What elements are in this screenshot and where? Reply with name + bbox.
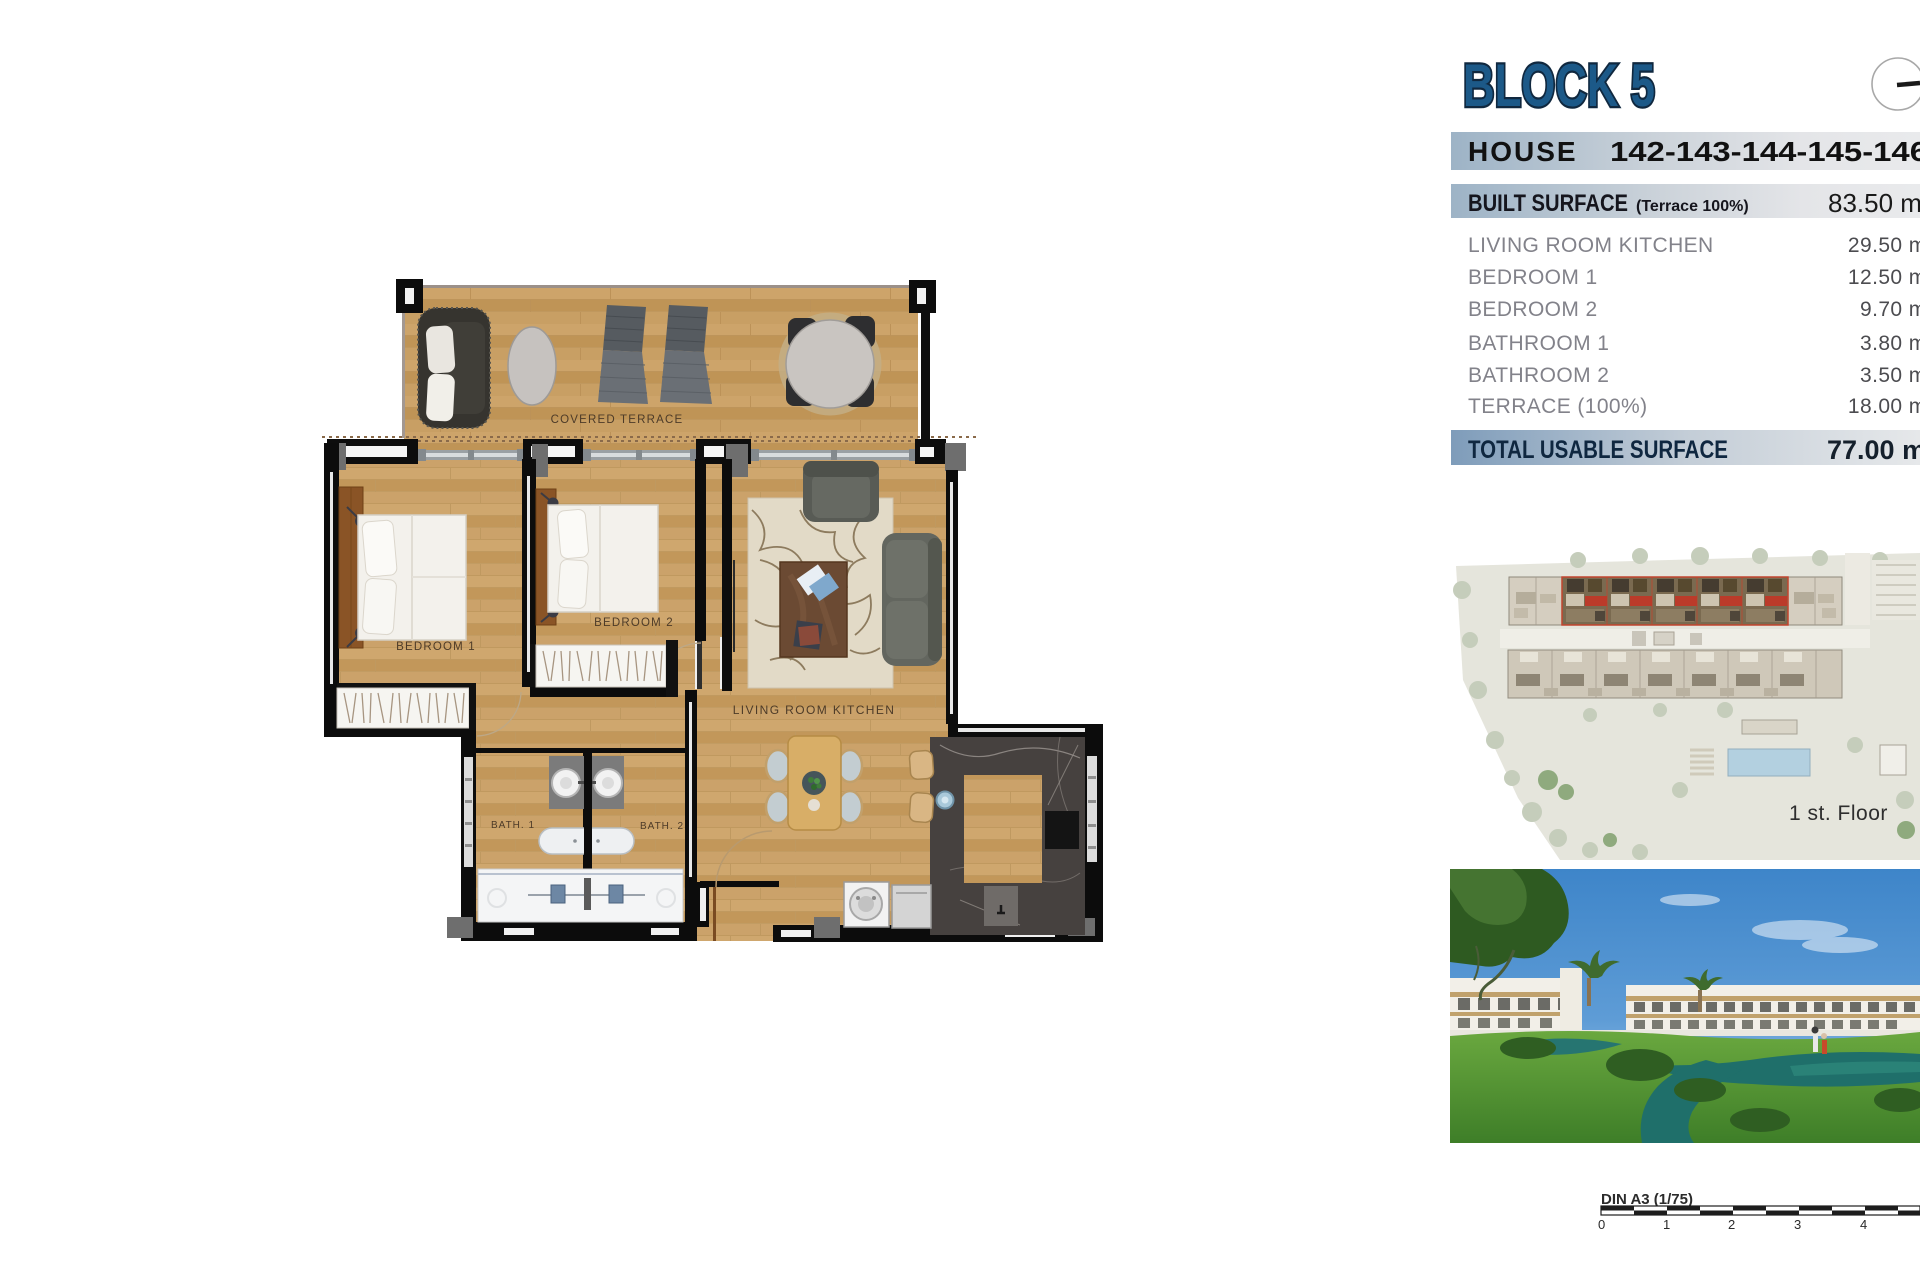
svg-text:(Terrace 100%): (Terrace 100%) (1636, 198, 1749, 215)
svg-text:BLOCK 5: BLOCK 5 (1463, 52, 1655, 119)
svg-text:0: 0 (1598, 1217, 1605, 1232)
svg-text:1: 1 (1663, 1217, 1670, 1232)
svg-text:29.50 m²: 29.50 m² (1848, 234, 1920, 257)
svg-text:TOTAL USABLE SURFACE: TOTAL USABLE SURFACE (1468, 436, 1728, 464)
svg-text:LIVING ROOM KITCHEN: LIVING ROOM KITCHEN (1468, 234, 1714, 257)
svg-text:BEDROOM 2: BEDROOM 2 (594, 617, 674, 629)
svg-text:3: 3 (1794, 1217, 1801, 1232)
svg-text:83.50 m²: 83.50 m² (1828, 188, 1920, 218)
svg-text:BATHROOM 2: BATHROOM 2 (1468, 364, 1609, 387)
svg-text:3.50 m²: 3.50 m² (1860, 364, 1920, 387)
svg-text:1 st. Floor: 1 st. Floor (1789, 802, 1888, 825)
svg-text:9.70 m²: 9.70 m² (1860, 298, 1920, 321)
svg-text:2: 2 (1728, 1217, 1735, 1232)
svg-text:TERRACE (100%): TERRACE (100%) (1468, 395, 1647, 418)
svg-text:COVERED TERRACE: COVERED TERRACE (551, 414, 684, 426)
svg-text:BEDROOM 1: BEDROOM 1 (396, 641, 476, 653)
svg-text:BATH. 2: BATH. 2 (640, 821, 684, 832)
svg-text:3.80 m²: 3.80 m² (1860, 332, 1920, 355)
svg-text:BEDROOM 2: BEDROOM 2 (1468, 298, 1598, 321)
svg-text:BATHROOM 1: BATHROOM 1 (1468, 332, 1609, 355)
svg-text:12.50 m²: 12.50 m² (1848, 266, 1920, 289)
svg-text:BUILT SURFACE: BUILT SURFACE (1468, 190, 1628, 217)
svg-text:BATH. 1: BATH. 1 (491, 820, 535, 831)
svg-text:77.00 m²: 77.00 m² (1827, 435, 1920, 465)
svg-text:4: 4 (1860, 1217, 1867, 1232)
svg-text:BEDROOM 1: BEDROOM 1 (1468, 266, 1598, 289)
svg-text:18.00 m²: 18.00 m² (1848, 395, 1920, 418)
svg-text:LIVING ROOM KITCHEN: LIVING ROOM KITCHEN (733, 703, 896, 717)
svg-text:142-143-144-145-146: 142-143-144-145-146 (1610, 136, 1920, 167)
svg-text:HOUSE: HOUSE (1468, 136, 1578, 167)
